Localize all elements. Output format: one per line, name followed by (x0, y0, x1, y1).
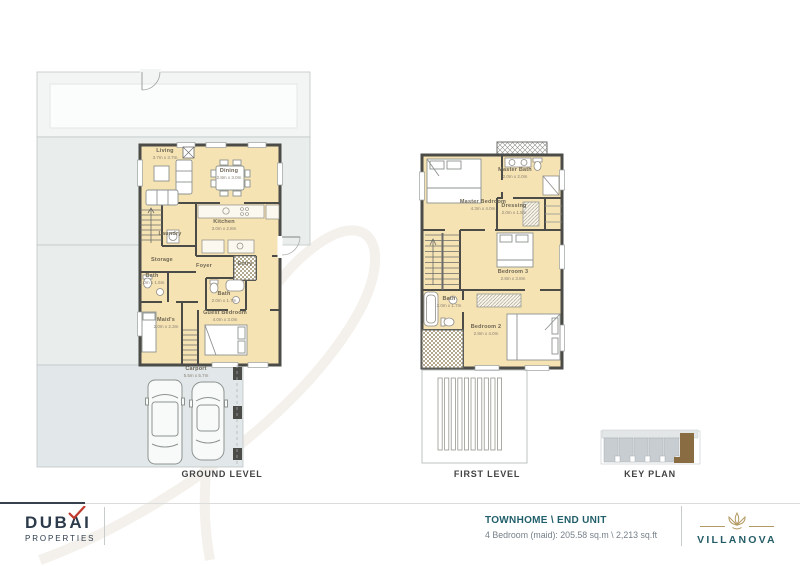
master-bed (427, 159, 481, 203)
room-label-dressing: Dressing 2.0m x 1.5m (501, 203, 526, 216)
brand-check-icon (67, 506, 87, 520)
tv-unit (183, 147, 194, 158)
room-label-entry: Entry (237, 261, 252, 268)
brand-name: DUBAI (25, 514, 95, 531)
key-plan (598, 424, 703, 468)
room-label-carport: Carport 5.5m x 5.7m (184, 366, 209, 379)
room-label-master-bath: Master Bath 2.0m x 2.0m (498, 167, 532, 180)
ground-level-plan (30, 60, 320, 480)
room-label-laundry: Laundry (158, 231, 181, 238)
room-label-powder-bath: Bath 2.0m x 1.5m (140, 273, 165, 286)
first-level-plan (405, 130, 585, 475)
brand-subtitle: PROPERTIES (25, 534, 95, 543)
room-label-bedroom3: Bedroom 3 2.8m x 3.8m (498, 269, 529, 282)
footer-divider-line (0, 503, 800, 504)
unit-title: TOWNHOME \ END UNIT (485, 515, 657, 526)
floor-plan-page: Living 3.7m x 3.7m Dining 2.8m x 3.0m Ki… (0, 0, 800, 566)
room-label-bedroom2: Bedroom 2 2.8m x 4.0m (471, 324, 502, 337)
room-label-foyer: Foyer (196, 263, 212, 270)
unit-info: TOWNHOME \ END UNIT 4 Bedroom (maid): 20… (485, 515, 657, 540)
car-1 (146, 380, 185, 464)
ground-level-caption: GROUND LEVEL (152, 469, 292, 479)
villanova-logo: VILLANOVA (696, 510, 778, 546)
room-label-bath: Bath 2.0m x 1.7m (212, 291, 237, 304)
room-label-living: Living 3.7m x 3.7m (153, 148, 178, 161)
footer-accent-line (0, 502, 85, 504)
key-plan-caption: KEY PLAN (580, 469, 720, 479)
terrace-hatch (422, 330, 463, 368)
room-label-bath-first: Bath 2.0m x 1.7m (437, 296, 462, 309)
wardrobe (477, 294, 521, 307)
guest-bed (205, 325, 247, 355)
dubai-properties-logo: DUBAI PROPERTIES (25, 514, 95, 543)
footer-vertical-divider-right (681, 506, 682, 546)
room-label-maids: Maid's 2.0m x 2.3m (154, 317, 179, 330)
room-label-kitchen: Kitchen 3.0m x 2.8m (212, 219, 237, 232)
bedroom2-bed (507, 314, 560, 360)
first-level-caption: FIRST LEVEL (417, 469, 557, 479)
room-label-guest-bedroom: Guest Bedroom 4.0m x 3.0m (203, 310, 247, 323)
pergola (422, 370, 527, 463)
unit-specs: 4 Bedroom (maid): 205.58 sq.m \ 2,213 sq… (485, 530, 657, 540)
room-label-dining: Dining 2.8m x 3.0m (217, 168, 242, 181)
bedroom3-bed (497, 233, 533, 267)
footer-vertical-divider-left (104, 507, 105, 545)
room-label-storage: Storage (151, 257, 173, 264)
villanova-flower-icon (696, 510, 778, 532)
room-label-master-bedroom: Master Bedroom 4.3m x 4.0m (460, 199, 506, 212)
car-2 (190, 382, 228, 460)
development-name: VILLANOVA (696, 534, 778, 546)
